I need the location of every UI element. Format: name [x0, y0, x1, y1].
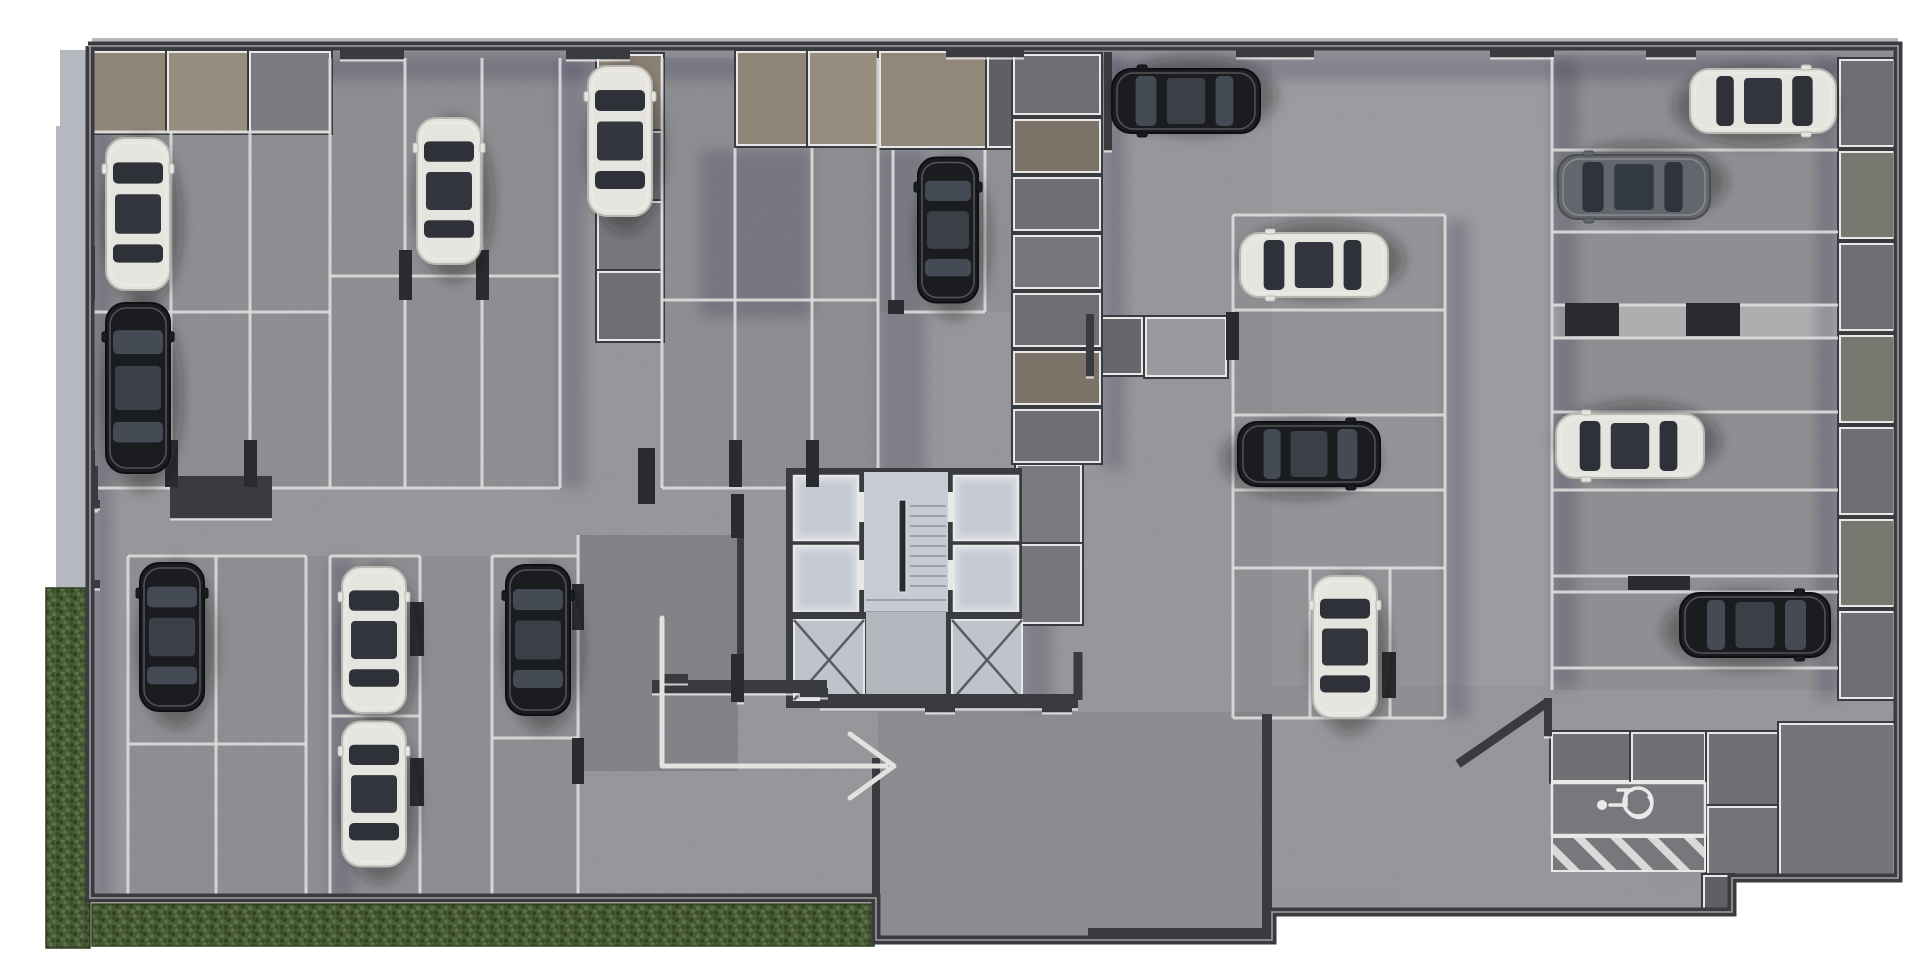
- car-white: [1239, 220, 1405, 301]
- car-roof-glass: [1291, 431, 1328, 477]
- car-windshield: [1320, 599, 1370, 619]
- car-mirror-left: [338, 592, 343, 602]
- car-mirror-left: [136, 588, 141, 598]
- car-rear-window: [424, 220, 474, 238]
- car-mirror-right: [1265, 229, 1275, 234]
- car-roof-glass: [1322, 629, 1368, 666]
- interior-wall: [1086, 314, 1094, 376]
- column-pillar: [244, 440, 257, 487]
- storage-room-floor: [598, 272, 662, 340]
- stair-rail: [899, 500, 906, 592]
- storage-room-floor: [988, 52, 1012, 147]
- car-mirror-left: [914, 182, 919, 192]
- elevator-door: [858, 492, 864, 522]
- column-pillar: [399, 250, 412, 300]
- garage-floor-plan-rendering: [0, 0, 1920, 960]
- column-pillar: [731, 494, 744, 538]
- storage-room-floor: [1146, 318, 1226, 376]
- storage-locker-floor: [1840, 336, 1894, 422]
- car-windshield: [349, 745, 399, 765]
- car-roof-glass: [1167, 78, 1205, 124]
- interior-wall: [1262, 714, 1272, 940]
- car-mirror-left: [1137, 132, 1147, 137]
- storage-locker-floor: [1840, 520, 1894, 606]
- car-white: [1673, 65, 1837, 146]
- car-rear-window: [1264, 429, 1281, 479]
- elevator-floor-shading: [960, 552, 1012, 606]
- car-mirror-left: [102, 164, 107, 174]
- car-mirror-right: [203, 588, 208, 598]
- storage-locker-floor: [1840, 60, 1894, 146]
- ramp-area: [580, 535, 738, 771]
- car-white: [1555, 401, 1721, 482]
- car-windshield: [1264, 240, 1285, 290]
- car-mirror-right: [1376, 600, 1381, 610]
- car-windshield: [1337, 429, 1357, 479]
- car-roof-glass: [1295, 242, 1333, 288]
- car-roof-glass: [1736, 602, 1775, 648]
- storage-room-floor: [1708, 733, 1778, 805]
- car-roof-glass: [515, 621, 561, 660]
- wheelchair-head: [1597, 800, 1607, 810]
- car-white: [584, 65, 665, 233]
- car-rear-window: [925, 259, 971, 276]
- wall-shadow: [700, 150, 812, 318]
- column-pillar: [572, 738, 584, 784]
- car-windshield: [1582, 162, 1603, 212]
- car-windshield: [349, 590, 399, 610]
- car-mirror-right: [569, 591, 574, 601]
- car-windshield: [1792, 76, 1812, 126]
- car-mirror-right: [1581, 410, 1591, 415]
- car-black: [102, 301, 183, 491]
- storage-room-floor: [809, 52, 878, 145]
- car-mirror-right: [1584, 151, 1594, 156]
- car-mirror-left: [1801, 65, 1811, 70]
- storage-room-floor: [250, 52, 330, 132]
- car-rear-window: [113, 244, 163, 262]
- storage-room-floor: [92, 52, 166, 132]
- column-pillar: [731, 654, 744, 702]
- car-black: [914, 157, 990, 319]
- grass-strip: [46, 588, 90, 948]
- car-white: [1309, 575, 1390, 734]
- car-roof-glass: [351, 775, 397, 813]
- column-pillar: [638, 448, 655, 504]
- car-rear-window: [1320, 675, 1370, 692]
- storage-room-floor: [168, 52, 248, 132]
- elevator-door: [948, 492, 954, 522]
- car-roof-glass: [927, 211, 969, 249]
- grass-strip: [92, 904, 874, 946]
- car-rear-window: [1664, 162, 1682, 212]
- car-roof-glass: [351, 621, 397, 659]
- car-mirror-right: [169, 332, 174, 342]
- car-mirror-right: [405, 746, 410, 756]
- car-roof-glass: [115, 366, 161, 410]
- car-roof-glass: [426, 172, 472, 210]
- car-windshield: [513, 589, 563, 610]
- car-mirror-right: [405, 592, 410, 602]
- storage-room-floor: [737, 52, 807, 145]
- elevator-door: [948, 560, 954, 590]
- core-lobby-floor: [866, 612, 946, 708]
- storage-room-floor: [1708, 807, 1778, 879]
- car-black: [502, 564, 583, 732]
- storage-locker-floor: [1014, 236, 1100, 288]
- storage-locker-floor: [1840, 428, 1894, 514]
- car-rear-window: [349, 669, 399, 687]
- car-mirror-right: [977, 182, 982, 192]
- column-pillar: [1628, 576, 1690, 590]
- car-mirror-right: [169, 164, 174, 174]
- column-pillar: [1686, 303, 1740, 336]
- storage-locker-floor: [1014, 410, 1100, 462]
- storage-room-floor: [1632, 733, 1705, 781]
- car-mirror-left: [413, 143, 418, 153]
- car-roof-glass: [115, 194, 161, 234]
- car-mirror-left: [1795, 589, 1805, 594]
- car-windshield: [595, 90, 645, 111]
- car-rear-window: [1216, 76, 1234, 126]
- car-rear-window: [513, 670, 563, 688]
- no-parking-hatch-zone: [1552, 837, 1705, 871]
- interior-wall: [1104, 52, 1112, 150]
- car-windshield: [1580, 421, 1601, 471]
- car-mirror-right: [1137, 65, 1147, 70]
- car-rear-window: [1707, 600, 1725, 650]
- car-white: [338, 566, 419, 730]
- storage-locker-floor: [1840, 612, 1894, 698]
- car-roof-glass: [149, 618, 195, 656]
- car-mirror-left: [584, 92, 589, 102]
- interior-wall: [800, 688, 828, 697]
- interior-wall: [1042, 702, 1072, 712]
- storage-locker-floor: [1014, 55, 1100, 114]
- car-mirror-left: [1581, 477, 1591, 482]
- wall-shadow: [1445, 220, 1469, 718]
- car-mirror-left: [1584, 218, 1594, 223]
- storage-room-floor: [1017, 545, 1081, 623]
- car-windshield: [925, 181, 971, 201]
- car-roof-glass: [1614, 164, 1654, 210]
- car-rear-window: [1660, 421, 1678, 471]
- car-black: [1111, 56, 1277, 137]
- car-black: [1221, 418, 1380, 499]
- car-rear-window: [1716, 76, 1734, 126]
- storage-locker-floor: [1840, 152, 1894, 238]
- car-mirror-right: [651, 92, 656, 102]
- storage-room-floor: [1017, 465, 1081, 543]
- car-rear-window: [595, 171, 645, 189]
- car-mirror-left: [102, 332, 107, 342]
- car-white: [338, 721, 419, 883]
- storage-room-floor: [880, 52, 986, 147]
- elevator-door: [858, 560, 864, 590]
- car-rear-window: [1344, 240, 1362, 290]
- floor-zone: [878, 712, 1264, 938]
- column-pillar: [1226, 312, 1239, 360]
- car-white: [102, 137, 183, 307]
- car-roof-glass: [1611, 423, 1649, 469]
- car-mirror-left: [1265, 296, 1275, 301]
- car-windshield: [1136, 76, 1157, 126]
- column-pillar: [729, 440, 742, 487]
- car-windshield: [1785, 600, 1806, 650]
- car-mirror-right: [1346, 485, 1356, 490]
- wall-shadow: [1552, 60, 1578, 688]
- elevator-floor-shading: [800, 482, 852, 534]
- interior-wall: [925, 702, 955, 712]
- car-mirror-right: [1801, 132, 1811, 137]
- floor-plan-canvas: [0, 0, 1920, 960]
- storage-locker-floor: [1840, 244, 1894, 330]
- elevator-floor-shading: [960, 482, 1012, 534]
- storage-locker-floor: [1014, 178, 1100, 230]
- car-roof-glass: [597, 122, 643, 161]
- car-rear-window: [349, 823, 399, 840]
- car-mirror-left: [338, 746, 343, 756]
- car-windshield: [147, 587, 197, 608]
- car-windshield: [113, 162, 163, 183]
- car-mirror-left: [1309, 600, 1314, 610]
- car-mirror-left: [1346, 418, 1356, 423]
- car-black: [136, 562, 217, 728]
- sidewalk-strip: [60, 50, 88, 128]
- storage-room-floor: [1780, 724, 1894, 876]
- car-rear-window: [147, 667, 197, 685]
- car-white: [413, 117, 494, 281]
- column-pillar: [806, 440, 819, 487]
- elevator-floor-shading: [800, 552, 852, 606]
- sidewalk-strip: [56, 126, 88, 588]
- car-mirror-left: [502, 591, 507, 601]
- car-windshield: [113, 330, 163, 354]
- wall-shadow: [560, 60, 586, 488]
- car-windshield: [424, 141, 474, 161]
- column-pillar: [1565, 303, 1619, 336]
- car-mirror-right: [1795, 656, 1805, 661]
- car-black: [1663, 589, 1831, 670]
- car-roof-glass: [1744, 78, 1782, 124]
- car-rear-window: [113, 422, 163, 442]
- car-mirror-right: [480, 143, 485, 153]
- storage-locker-floor: [1014, 120, 1100, 172]
- car-gray: [1557, 142, 1727, 223]
- column-pillar: [888, 300, 904, 314]
- storage-room-floor: [1552, 733, 1630, 781]
